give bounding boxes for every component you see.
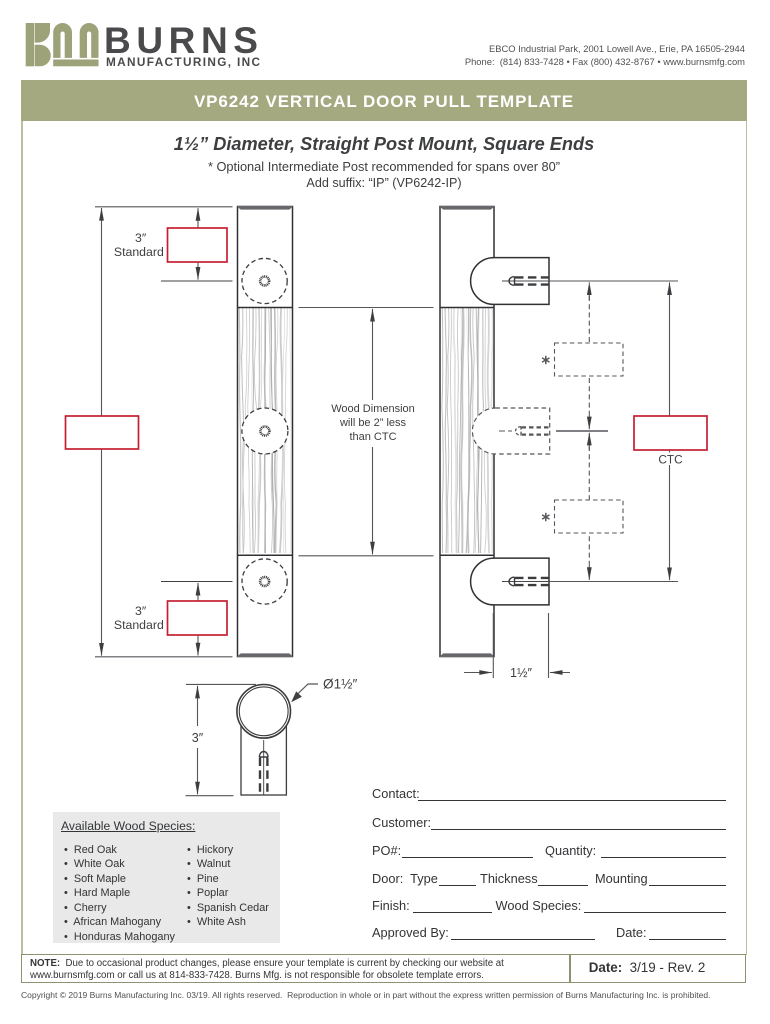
svg-text:CTC: CTC — [658, 453, 683, 467]
svg-text:Wood Dimension: Wood Dimension — [331, 403, 415, 415]
svg-text:1½″: 1½″ — [510, 666, 533, 680]
svg-text:Standard: Standard — [114, 618, 164, 632]
svg-text:Ø1½″: Ø1½″ — [323, 677, 357, 692]
svg-text:3″: 3″ — [192, 731, 204, 745]
svg-text:3″: 3″ — [135, 604, 147, 618]
svg-text:3″: 3″ — [135, 231, 147, 245]
svg-text:will be 2” less: will be 2” less — [339, 417, 407, 429]
svg-text:Standard: Standard — [114, 245, 164, 259]
svg-text:than CTC: than CTC — [349, 431, 396, 443]
